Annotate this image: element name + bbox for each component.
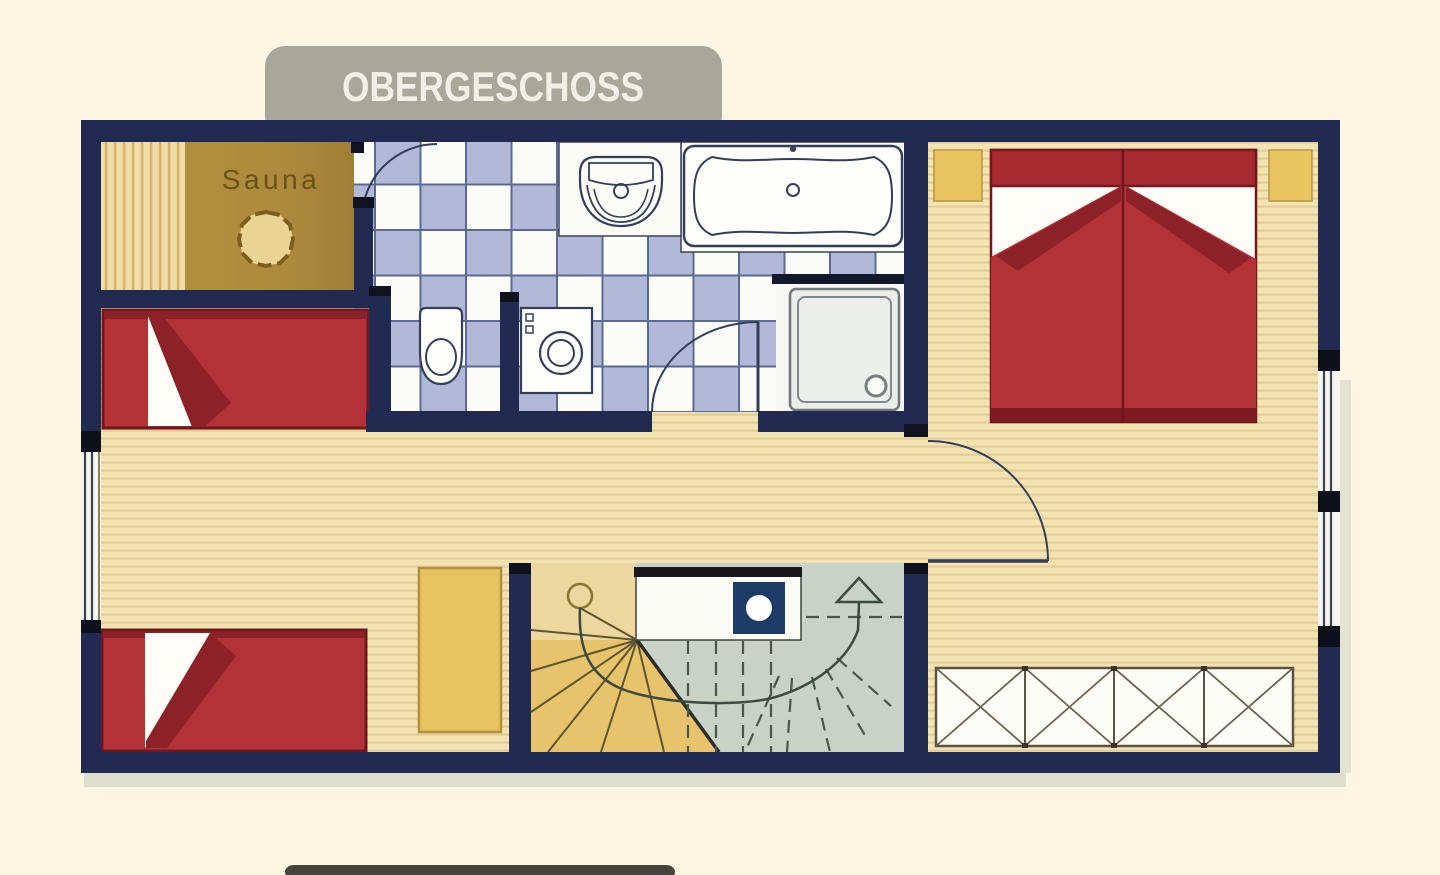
svg-text:OBERGESCHOSS: OBERGESCHOSS	[342, 63, 644, 110]
svg-text:Sauna: Sauna	[222, 164, 320, 195]
